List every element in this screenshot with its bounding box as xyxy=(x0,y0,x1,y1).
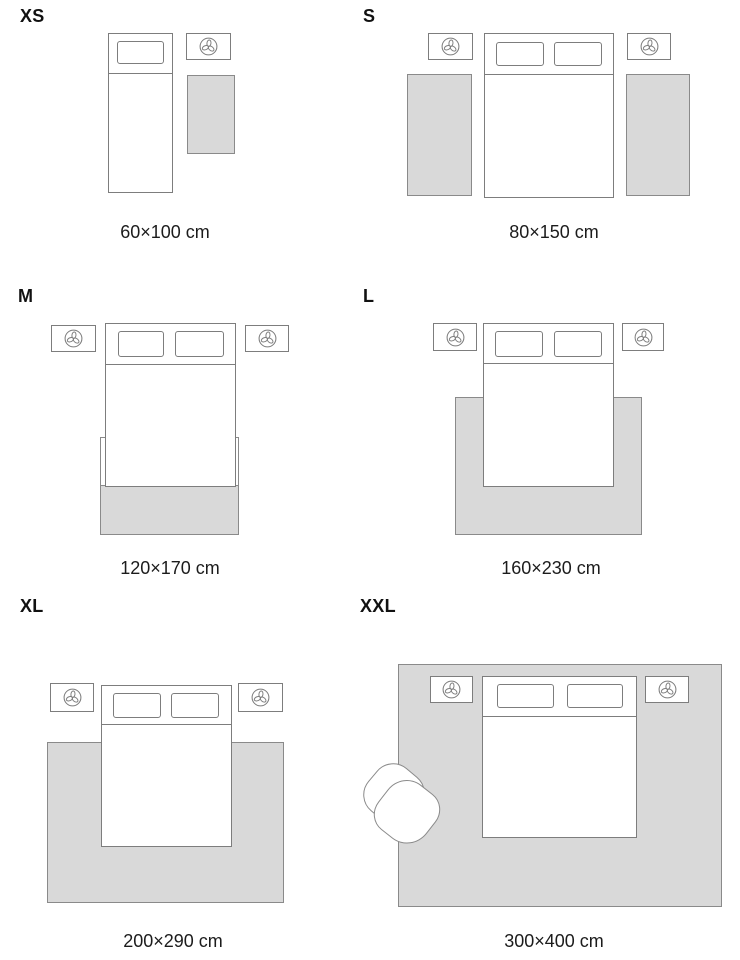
plant-icon xyxy=(657,679,678,700)
rug-visible-area xyxy=(101,485,238,534)
nightstand xyxy=(245,325,289,352)
plant-icon xyxy=(257,328,278,349)
bed-headboard xyxy=(485,34,613,75)
nightstand xyxy=(645,676,689,703)
plant-icon xyxy=(440,36,461,57)
double-bed xyxy=(483,323,614,487)
double-bed xyxy=(105,323,236,487)
size-label-xl: XL xyxy=(20,596,44,617)
rug-s-left xyxy=(407,74,472,196)
pillow xyxy=(554,42,602,66)
pillow xyxy=(117,41,164,64)
plant-icon xyxy=(445,327,466,348)
double-bed xyxy=(101,685,232,847)
pillow xyxy=(497,684,554,708)
rug-dimensions-l: 160×230 cm xyxy=(451,558,651,579)
rug-dimensions-xl: 200×290 cm xyxy=(73,931,273,952)
bed-headboard xyxy=(109,34,172,74)
size-label-l: L xyxy=(363,286,374,307)
size-label-xxl: XXL xyxy=(360,596,396,617)
pillow xyxy=(171,693,219,718)
rug-size-guide: XS 60×100 cm S 80×150 cm xyxy=(0,0,740,960)
plant-icon xyxy=(63,328,84,349)
rug-xs xyxy=(187,75,235,154)
rug-dimensions-s: 80×150 cm xyxy=(454,222,654,243)
rug-dimensions-xxl: 300×400 cm xyxy=(454,931,654,952)
rug-dimensions-m: 120×170 cm xyxy=(70,558,270,579)
pillow xyxy=(567,684,623,708)
bed-headboard xyxy=(483,677,636,717)
rug-dimensions-xs: 60×100 cm xyxy=(65,222,265,243)
nightstand xyxy=(238,683,283,712)
rug-s-right xyxy=(626,74,690,196)
pillow xyxy=(118,331,164,357)
pillow xyxy=(113,693,161,718)
bed-headboard xyxy=(102,686,231,725)
armchair xyxy=(361,765,447,851)
nightstand xyxy=(186,33,231,60)
nightstand xyxy=(50,683,94,712)
plant-icon xyxy=(250,687,271,708)
plant-icon xyxy=(198,36,219,57)
nightstand xyxy=(433,323,477,351)
pillow xyxy=(554,331,602,357)
nightstand xyxy=(622,323,664,351)
size-label-xs: XS xyxy=(20,6,45,27)
bed-headboard xyxy=(106,324,235,365)
pillow xyxy=(496,42,544,66)
double-bed xyxy=(484,33,614,198)
pillow xyxy=(175,331,224,357)
pillow xyxy=(495,331,543,357)
plant-icon xyxy=(633,327,654,348)
nightstand xyxy=(51,325,96,352)
plant-icon xyxy=(62,687,83,708)
nightstand xyxy=(428,33,473,60)
plant-icon xyxy=(441,679,462,700)
size-label-m: M xyxy=(18,286,33,307)
plant-icon xyxy=(639,36,660,57)
double-bed xyxy=(482,676,637,838)
single-bed xyxy=(108,33,173,193)
nightstand xyxy=(627,33,671,60)
nightstand xyxy=(430,676,473,703)
bed-headboard xyxy=(484,324,613,364)
size-label-s: S xyxy=(363,6,375,27)
